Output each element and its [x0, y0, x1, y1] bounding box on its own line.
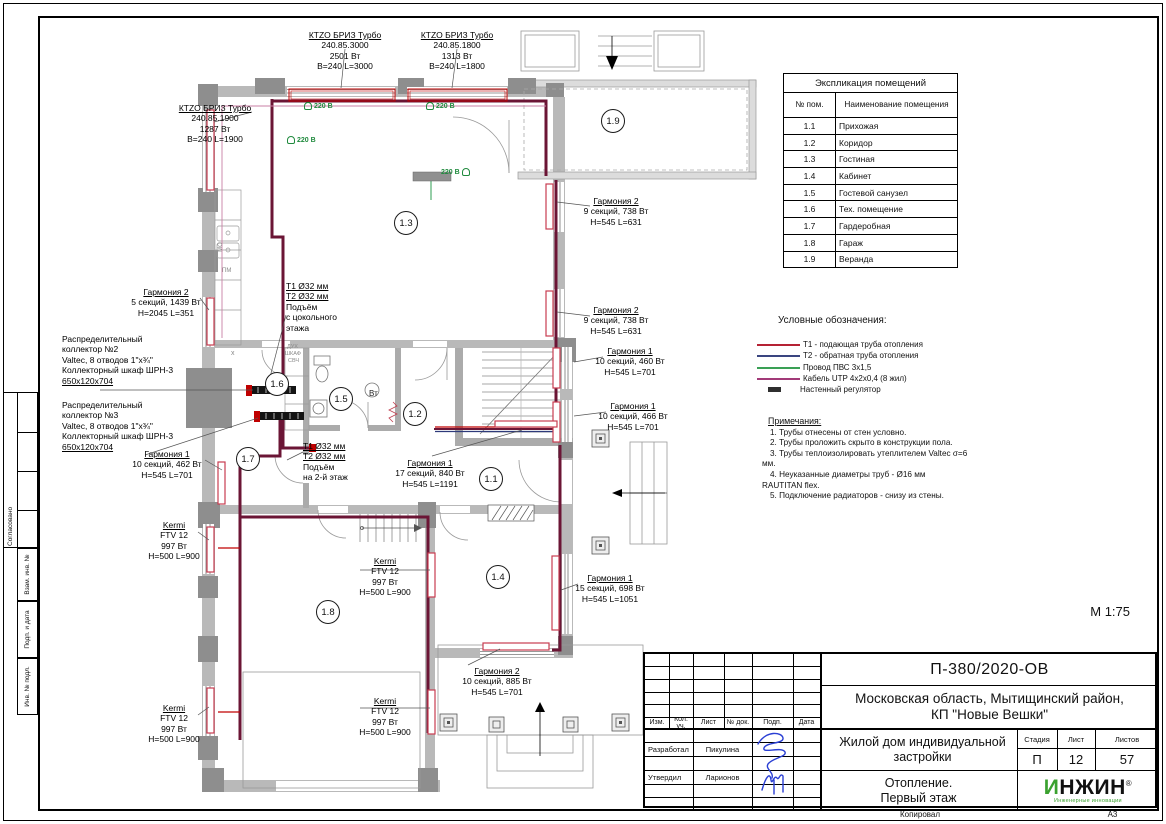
- plan-label-garmoniya2-885: Гармония 210 секций, 885 ВтH=545 L=701: [432, 666, 562, 697]
- power-220v-label: 220 В: [441, 168, 470, 176]
- legend-label: Т2 - обратная труба отопления: [803, 351, 918, 360]
- tb-role-approved: Утвердил: [645, 770, 696, 784]
- notes-title: Примечания:: [768, 416, 821, 426]
- tb-location-line2: КП "Новые Вешки": [931, 707, 1048, 723]
- room-tag-1.1: 1.1: [479, 467, 503, 491]
- legend-symbol: [757, 367, 800, 369]
- side-stamp-label-1: Взам. инв. №: [21, 548, 34, 601]
- note-item: 5. Подключение радиаторов - снизу из сте…: [762, 491, 968, 502]
- room-name: Тех. помещение: [836, 201, 958, 218]
- logo-text: ИНЖИН®: [1044, 777, 1132, 798]
- drawing-sheet: КТZО БРИЗ Турбо240.85.30002501 ВтВ=240 L…: [0, 0, 1166, 824]
- socket-icon: [426, 102, 434, 110]
- copied-label: Копировал: [870, 810, 970, 819]
- tb-section-line2: Первый этаж: [881, 791, 957, 806]
- note-item: 2. Трубы проложить скрыто в конструкции …: [762, 438, 968, 449]
- tb-col-koluch: Кол. уч.: [669, 717, 693, 728]
- tb-section-line1: Отопление.: [885, 776, 953, 791]
- explication-row: 1.6 Тех. помещение: [784, 201, 958, 218]
- room-number: 1.2: [784, 134, 836, 151]
- room-name: Коридор: [836, 134, 958, 151]
- room-tag-1.7: 1.7: [236, 447, 260, 471]
- legend-label: Кабель UTP 4х2х0,4 (8 жил): [803, 374, 907, 383]
- plan-annotation: ПМ: [222, 268, 231, 274]
- logo-first-letter: И: [1044, 776, 1060, 799]
- plan-annotation: х: [231, 350, 235, 357]
- legend-item: Провод ПВС 3х1,5: [757, 363, 1002, 374]
- tb-col-data: Дата: [793, 717, 820, 728]
- explication-row: 1.5 Гостевой санузел: [784, 184, 958, 201]
- socket-icon: [462, 168, 470, 176]
- plan-label-garmoniya2-738a: Гармония 29 секций, 738 ВтH=545 L=631: [551, 196, 681, 227]
- room-number: 1.8: [784, 234, 836, 251]
- room-number: 1.7: [784, 218, 836, 235]
- plan-label-ktzo-3000: КТZО БРИЗ Турбо240.85.30002501 ВтВ=240 L…: [280, 30, 410, 72]
- legend-item: Настенный регулятор: [757, 385, 1002, 396]
- plan-label-kermi-2: KermiFTV 12997 ВтH=500 L=900: [320, 556, 450, 598]
- explication-col-number: № пом.: [784, 93, 836, 118]
- legend-title: Условные обозначения:: [778, 315, 1002, 326]
- tb-col-podp: Подп.: [752, 717, 793, 728]
- room-number: 1.6: [784, 201, 836, 218]
- legend-item: Т1 - подающая труба отопления: [757, 340, 1002, 351]
- power-220v-label: 220 В: [287, 136, 316, 144]
- plan-label-collector-3: Распределительныйколлектор №3Valtec, 8 о…: [62, 400, 192, 452]
- explication-row: 1.7 Гардеробная: [784, 218, 958, 235]
- plan-label-garmoniya1-462: Гармония 110 секций, 462 ВтH=545 L=701: [102, 449, 232, 480]
- plan-label-ktzo-1800: КТZО БРИЗ Турбо240.85.18001313 ВтВ=240 L…: [392, 30, 522, 72]
- plan-label-kermi-1: KermiFTV 12997 ВтH=500 L=900: [109, 520, 239, 562]
- note-item: 1. Трубы отнесены от стен условно.: [762, 428, 968, 439]
- plan-label-collector-2: Распределительныйколлектор №2Valtec, 8 о…: [62, 334, 192, 386]
- legend-item: Кабель UTP 4х2х0,4 (8 жил): [757, 374, 1002, 385]
- plan-label-garmoniya1-698: Гармония 115 секций, 698 ВтH=545 L=1051: [545, 573, 675, 604]
- format-label: А3: [1095, 810, 1130, 819]
- socket-icon: [287, 136, 295, 144]
- tb-stage-label: Стадия: [1017, 730, 1057, 748]
- tb-object-name: Жилой дом индивидуальной застройки: [820, 730, 1025, 770]
- room-name: Гардеробная: [836, 218, 958, 235]
- power-220v-label: 220 В: [304, 102, 333, 110]
- side-stamp-agreed-label: Согласовано: [4, 396, 17, 546]
- explication-row: 1.4 Кабинет: [784, 168, 958, 185]
- tb-sheets-value: 57: [1095, 749, 1159, 770]
- plan-label-garmoniya2-5s: Гармония 25 секций, 1439 ВтH=2045 L=351: [101, 287, 231, 318]
- tb-role-developed: Разработал: [645, 742, 696, 756]
- room-explication-table: Экспликация помещений № пом. Наименовани…: [783, 73, 958, 268]
- room-name: Гостевой санузел: [836, 184, 958, 201]
- plan-annotation: СВЧ: [288, 359, 299, 365]
- room-name: Кабинет: [836, 168, 958, 185]
- tb-section: Отопление. Первый этаж: [820, 771, 1017, 810]
- explication-row: 1.3 Гостиная: [784, 151, 958, 168]
- scale-label: М 1:75: [1058, 604, 1130, 619]
- socket-icon: [304, 102, 312, 110]
- tb-col-list: Лист: [693, 717, 724, 728]
- tb-sheet-label: Лист: [1057, 730, 1095, 748]
- room-tag-1.3: 1.3: [394, 211, 418, 235]
- explication-row: 1.9 Веранда: [784, 251, 958, 268]
- room-tag-1.5: 1.5: [329, 387, 353, 411]
- legend-item: Т2 - обратная труба отопления: [757, 351, 1002, 362]
- tb-col-dok: № док.: [724, 717, 752, 728]
- plan-annotation: ШКАФ: [285, 352, 301, 358]
- room-tag-1.2: 1.2: [403, 402, 427, 426]
- room-name: Гостиная: [836, 151, 958, 168]
- room-tag-1.6: 1.6: [265, 372, 289, 396]
- plan-label-riser-basement: Т1 Ø32 ммТ2 Ø32 ммПодъёмс цокольногоэтаж…: [286, 281, 416, 333]
- signature-strokes: [752, 728, 793, 798]
- tb-sheet-value: 12: [1057, 749, 1095, 770]
- explication-row: 1.2 Коридор: [784, 134, 958, 151]
- legend-symbol: [768, 387, 781, 392]
- legend: Условные обозначения: Т1 - подающая труб…: [757, 315, 1002, 396]
- plan-annotation: МО: [218, 242, 224, 252]
- tb-sheets-label: Листов: [1095, 730, 1159, 748]
- room-number: 1.1: [784, 118, 836, 135]
- plan-label-garmoniya1-840: Гармония 117 секций, 840 ВтH=545 L=1191: [365, 458, 495, 489]
- room-tag-1.4: 1.4: [486, 565, 510, 589]
- room-name: Прихожая: [836, 118, 958, 135]
- room-number: 1.3: [784, 151, 836, 168]
- legend-label: Т1 - подающая труба отопления: [803, 340, 923, 349]
- explication-row: 1.1 Прихожая: [784, 118, 958, 135]
- plan-label-ktzo-1900: КТZО БРИЗ Турбо240.85.19001287 ВтВ=240 L…: [150, 103, 280, 145]
- side-stamp-label-3: Инв. № подл.: [21, 658, 34, 715]
- legend-symbol: [757, 378, 800, 380]
- explication-title: Экспликация помещений: [784, 74, 958, 93]
- note-item: 4. Неуказанные диаметры труб - Ø16 мм RA…: [762, 470, 968, 491]
- room-number: 1.4: [784, 168, 836, 185]
- tb-stage-value: П: [1017, 749, 1057, 770]
- explication-row: 1.8 Гараж: [784, 234, 958, 251]
- plan-annotation: Вт: [369, 390, 378, 398]
- legend-symbol: [757, 355, 800, 357]
- plan-label-garmoniya1-460: Гармония 110 секций, 460 ВтH=545 L=701: [565, 346, 695, 377]
- plan-label-kermi-4: KermiFTV 12997 ВтH=500 L=900: [320, 696, 450, 738]
- legend-label: Провод ПВС 3х1,5: [803, 363, 871, 372]
- power-220v-label: 220 В: [426, 102, 455, 110]
- logo-rest: НЖИН: [1059, 776, 1125, 799]
- room-tag-1.9: 1.9: [601, 109, 625, 133]
- plan-label-garmoniya1-466: Гармония 110 секций, 466 ВтH=545 L=701: [568, 401, 698, 432]
- side-stamp-label-2: Подп. и дата: [21, 601, 34, 658]
- plan-label-kermi-3: KermiFTV 12997 ВтH=500 L=900: [109, 703, 239, 745]
- plan-label-garmoniya2-738b: Гармония 29 секций, 738 ВтH=545 L=631: [551, 305, 681, 336]
- tb-name-developed: Пикулина: [693, 742, 752, 756]
- tb-name-approved: Ларионов: [693, 770, 752, 784]
- legend-label: Настенный регулятор: [800, 385, 881, 394]
- legend-symbol: [757, 344, 800, 346]
- room-tag-1.8: 1.8: [316, 600, 340, 624]
- logo-subtitle: Инженерные инновации: [1054, 799, 1122, 805]
- room-name: Веранда: [836, 251, 958, 268]
- notes: Примечания: 1. Трубы отнесены от стен ус…: [762, 416, 968, 502]
- room-number: 1.9: [784, 251, 836, 268]
- title-block: Изм. Кол. уч. Лист № док. Подп. Дата Раз…: [643, 652, 1157, 808]
- registered-mark: ®: [1126, 779, 1132, 788]
- room-name: Гараж: [836, 234, 958, 251]
- tb-location-line1: Московская область, Мытищинский район,: [855, 691, 1124, 707]
- tb-doc-number: П-380/2020-ОВ: [820, 654, 1159, 685]
- note-item: 3. Трубы теплоизолировать утеплителем Va…: [762, 449, 968, 470]
- tb-location: Московская область, Мытищинский район, К…: [820, 685, 1159, 728]
- plan-annotation: ДУХ: [287, 345, 298, 351]
- tb-col-izm: Изм.: [645, 717, 669, 728]
- company-logo: ИНЖИН® Инженерные инновации: [1017, 771, 1159, 810]
- explication-col-name: Наименование помещения: [836, 93, 958, 118]
- room-number: 1.5: [784, 184, 836, 201]
